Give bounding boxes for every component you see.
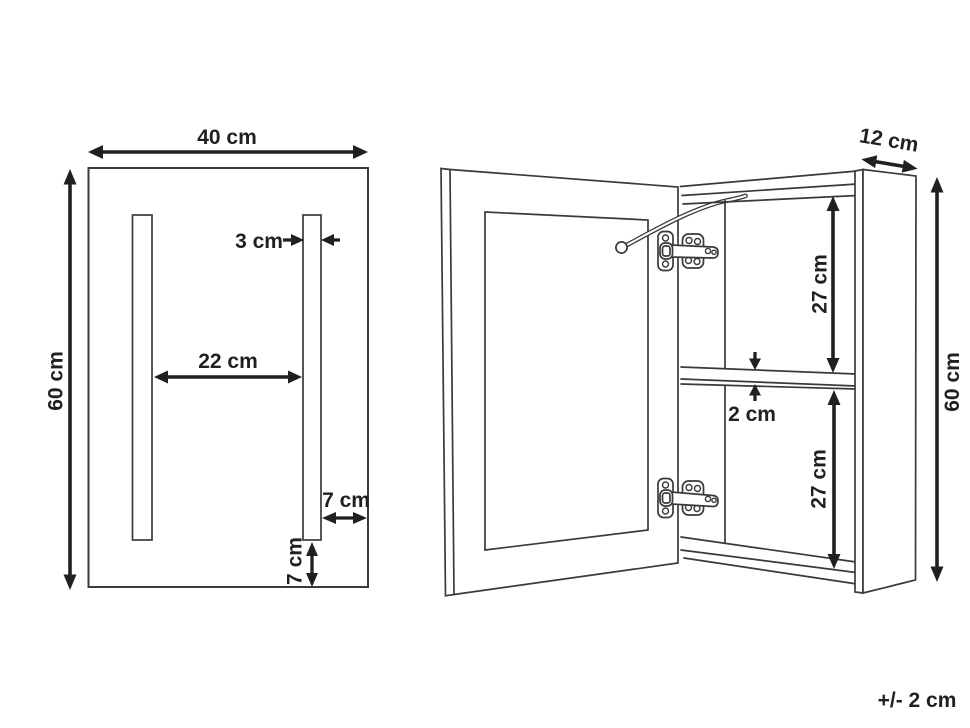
- diagram-svg: 40 cm 60 cm 3 cm 22 cm: [0, 0, 970, 728]
- dimension-diagram: 40 cm 60 cm 3 cm 22 cm: [0, 0, 970, 728]
- hinge-bottom: [658, 479, 718, 518]
- side-height-dimension: 60 cm: [931, 177, 965, 582]
- strip-side-offset-label: 7 cm: [322, 489, 370, 512]
- middle-shelf: [681, 367, 856, 389]
- upper-compartment-label: 27 cm: [809, 254, 832, 314]
- side-view: 12 cm 27 cm 2 cm 27 cm: [441, 124, 964, 596]
- side-panel-face: [863, 170, 916, 594]
- open-door: [441, 169, 678, 596]
- upper-compartment-dimension: 27 cm: [809, 196, 840, 373]
- depth-label: 12 cm: [858, 124, 921, 157]
- lower-compartment-dimension: 27 cm: [808, 390, 841, 569]
- front-height-label: 60 cm: [45, 351, 68, 411]
- hinge-top: [658, 232, 718, 271]
- front-width-dimension: 40 cm: [88, 126, 368, 159]
- front-height-dimension: 60 cm: [45, 169, 77, 590]
- strip-bottom-offset-dimension: 7 cm: [284, 537, 319, 587]
- cable-grommet: [616, 242, 627, 253]
- side-height-label: 60 cm: [941, 352, 964, 412]
- front-width-label: 40 cm: [197, 126, 257, 149]
- front-view: 40 cm 60 cm 3 cm 22 cm: [45, 126, 370, 590]
- strip-bottom-offset-label: 7 cm: [284, 537, 307, 585]
- depth-dimension: 12 cm: [858, 124, 921, 175]
- strip-width-label: 3 cm: [235, 230, 283, 253]
- strip-side-offset-dimension: 7 cm: [322, 489, 370, 524]
- side-panel: [855, 170, 916, 594]
- cabinet-carcass: [681, 170, 917, 594]
- lower-compartment-label: 27 cm: [808, 449, 831, 509]
- door-outline: [441, 169, 678, 596]
- strip-spacing-label: 22 cm: [198, 350, 258, 373]
- shelf-thickness-label: 2 cm: [728, 403, 776, 426]
- side-panel-front-edge: [855, 170, 863, 594]
- top-panel-lines: [681, 171, 858, 204]
- shelf-thickness-dimension: 2 cm: [728, 352, 776, 426]
- tolerance-note: +/- 2 cm: [878, 689, 957, 712]
